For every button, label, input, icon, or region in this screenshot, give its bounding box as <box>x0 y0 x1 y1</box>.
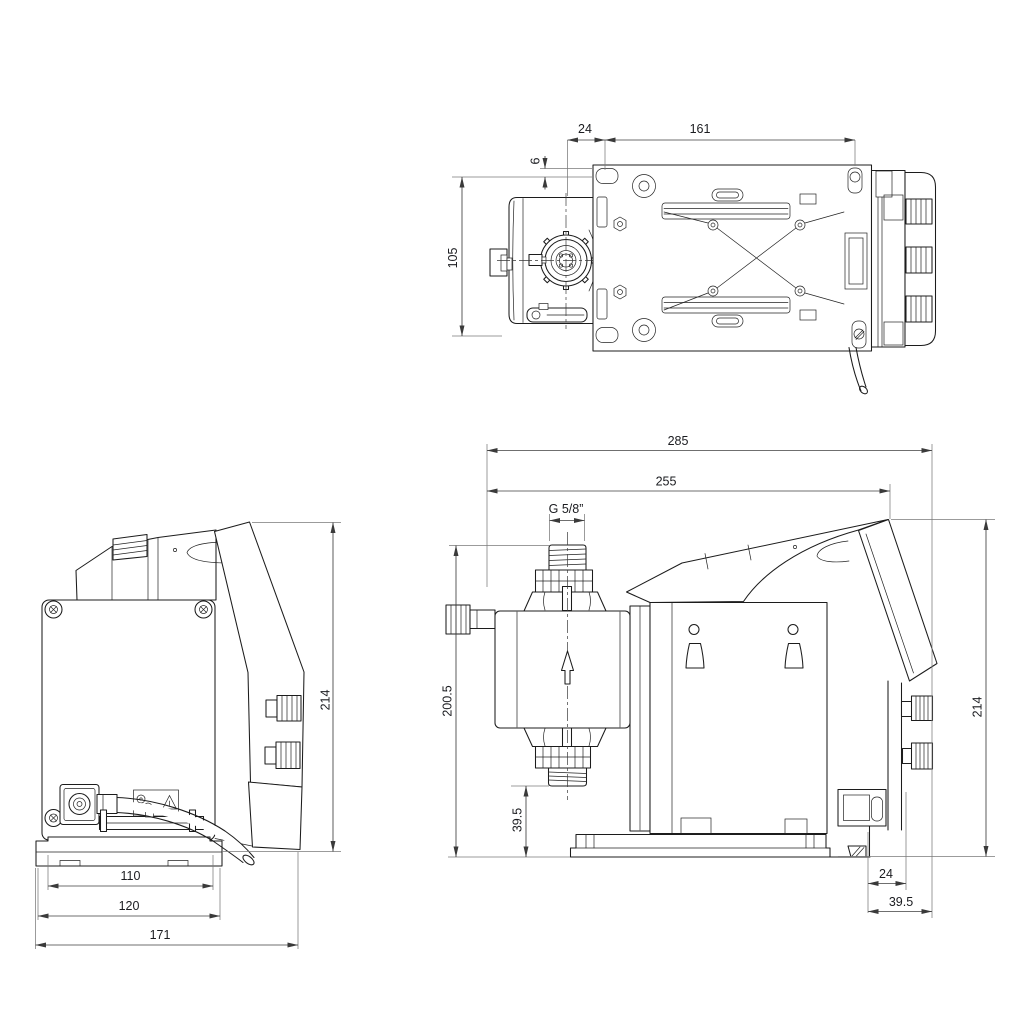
side-top-cover <box>627 520 889 603</box>
drawing-canvas: 24 161 105 6 <box>0 0 1024 1024</box>
side-wall-back <box>249 782 303 850</box>
dim-label-110: 110 <box>121 869 141 883</box>
dim-label-120: 120 <box>119 899 140 913</box>
dim-label-thread: G 5/8” <box>549 502 584 516</box>
dim-label-105: 105 <box>446 248 460 269</box>
suction-valve <box>524 728 606 786</box>
base-back <box>36 837 222 866</box>
pump-body-side <box>630 603 827 834</box>
dim-label-255: 255 <box>656 475 677 489</box>
dosing-head-side <box>446 532 630 800</box>
right-wall <box>888 681 902 830</box>
dim-label-161: 161 <box>690 122 711 136</box>
base-plate-top <box>593 165 872 351</box>
dim-label-285: 285 <box>668 434 689 448</box>
dim-label-39-5-right: 39.5 <box>889 895 913 909</box>
power-cable-top <box>849 348 869 396</box>
dim-label-214-back: 214 <box>319 690 333 711</box>
technical-drawing: 24 161 105 6 <box>0 0 1024 1024</box>
discharge-valve <box>524 545 606 611</box>
rear-bracket <box>838 790 886 858</box>
back-top-cover <box>76 530 228 600</box>
dim-label-24-side: 24 <box>879 867 893 881</box>
dim-label-171: 171 <box>150 928 171 942</box>
dim-label-214-side: 214 <box>971 697 985 718</box>
cable-gland-knobs-side <box>902 696 933 769</box>
dim-label-top-24: 24 <box>578 122 592 136</box>
base-side <box>571 835 871 858</box>
hmi-panel-side <box>859 520 938 682</box>
cable-gland-knobs-top <box>906 199 932 322</box>
back-view: 110 120 171 214 <box>36 522 342 949</box>
dim-label-39-5-left: 39.5 <box>511 808 525 832</box>
top-view: 24 161 105 6 <box>446 122 936 395</box>
dim-label-200-5: 200.5 <box>441 685 455 716</box>
dim-label-6: 6 <box>529 157 543 164</box>
side-view: 285 255 G 5/8” 200.5 39.5 214 24 39.5 <box>441 434 996 918</box>
